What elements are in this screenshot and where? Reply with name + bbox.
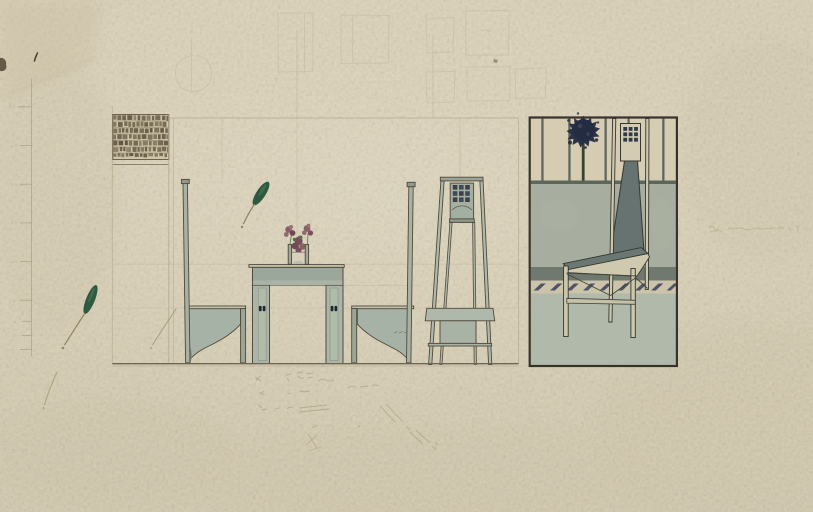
svg-text:1.0: 1.0 [11,259,17,264]
svg-text:4.0: 4.0 [11,143,17,148]
svg-text:5.0: 5.0 [9,104,15,109]
svg-text:3.0: 3.0 [11,182,17,187]
svg-text:2.0: 2.0 [11,220,17,225]
